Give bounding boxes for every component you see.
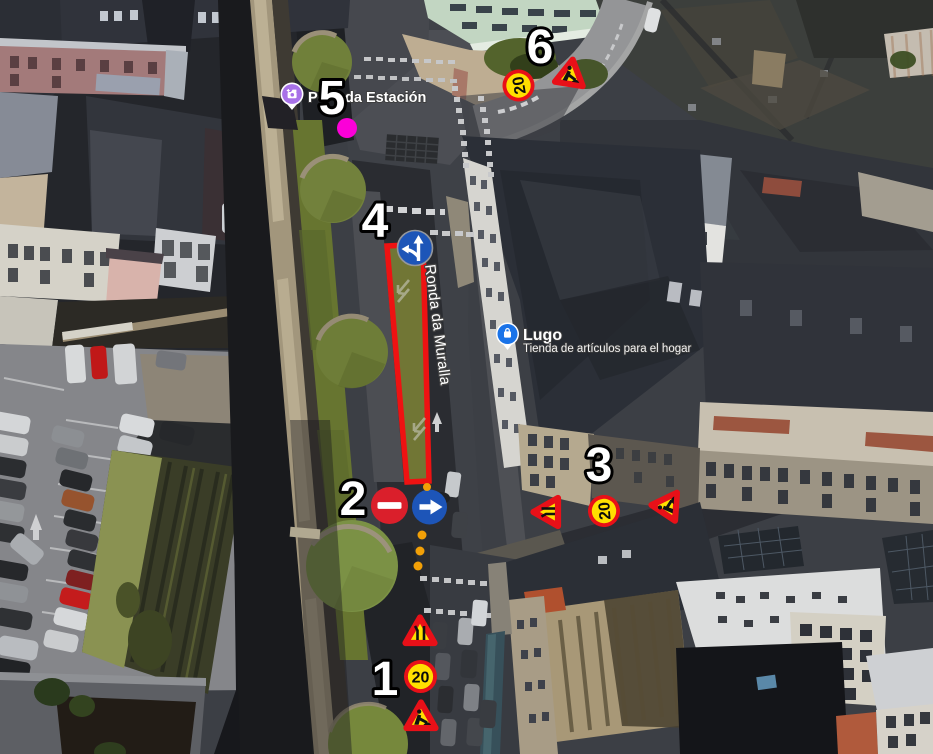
svg-text:Tienda de artículos para el ho: Tienda de artículos para el hogar xyxy=(523,343,692,355)
svg-text:Lugo: Lugo xyxy=(523,327,562,344)
svg-text:6: 6 xyxy=(527,21,554,74)
svg-text:5: 5 xyxy=(319,72,346,125)
svg-text:3: 3 xyxy=(586,439,613,492)
svg-text:4: 4 xyxy=(362,195,389,248)
svg-text:20: 20 xyxy=(596,501,614,520)
svg-text:20: 20 xyxy=(510,75,530,96)
svg-text:2: 2 xyxy=(340,473,367,526)
svg-text:da Estación: da Estación xyxy=(345,90,426,106)
svg-text:20: 20 xyxy=(412,670,430,687)
svg-text:1: 1 xyxy=(372,653,399,706)
